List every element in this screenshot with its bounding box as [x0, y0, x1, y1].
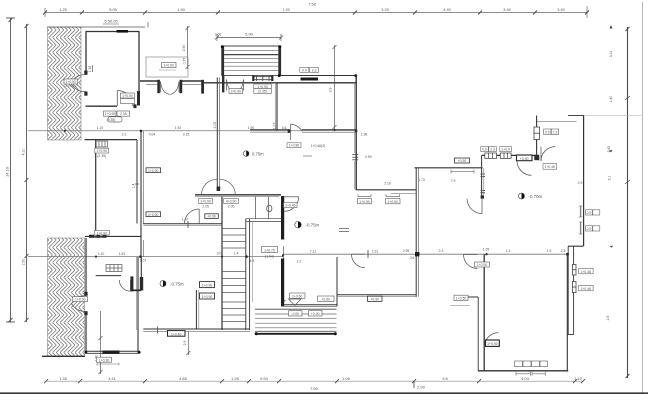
svg-text:1+0.45: 1+0.45 — [545, 165, 556, 169]
svg-text:2.95: 2.95 — [403, 249, 410, 253]
svg-text:2.3: 2.3 — [439, 249, 444, 253]
svg-text:7.9: 7.9 — [451, 179, 456, 183]
svg-text:3.0: 3.0 — [217, 252, 222, 256]
svg-text:1.98: 1.98 — [361, 133, 368, 137]
svg-text:2.3: 2.3 — [490, 148, 495, 152]
svg-text:2.5: 2.5 — [561, 249, 566, 253]
svg-text:1+0.48: 1+0.48 — [581, 287, 592, 291]
svg-text:7.11: 7.11 — [310, 250, 316, 254]
svg-text:1+0.80: 1+0.80 — [289, 144, 300, 148]
svg-text:(1.94): (1.94) — [265, 255, 274, 259]
svg-text:5.05: 5.05 — [109, 7, 117, 12]
svg-text:1+0.90: 1+0.90 — [163, 64, 174, 68]
svg-text:+0.90: +0.90 — [520, 157, 529, 161]
svg-text:1+0.90: 1+0.90 — [257, 85, 268, 89]
svg-text:0.77: 0.77 — [183, 58, 187, 65]
svg-text:1+0.90: 1+0.90 — [97, 231, 108, 235]
svg-text:1+0.90: 1+0.90 — [202, 295, 213, 299]
svg-text:1+0.40: 1+0.40 — [171, 332, 182, 336]
svg-text:1.35: 1.35 — [88, 66, 92, 73]
svg-text:+0.90: +0.90 — [458, 159, 467, 163]
svg-text:1.3: 1.3 — [506, 249, 511, 253]
svg-text:1+0.9: 1+0.9 — [501, 148, 510, 152]
svg-text:2.05: 2.05 — [228, 205, 235, 209]
svg-text:+0.60: +0.60 — [321, 297, 330, 301]
svg-text:1.9: 1.9 — [547, 249, 552, 253]
svg-text:1.10: 1.10 — [574, 376, 583, 381]
svg-text:2+0.90: 2+0.90 — [231, 90, 242, 94]
svg-text:1+0.75: 1+0.75 — [264, 248, 275, 252]
svg-text:0.15: 0.15 — [183, 133, 190, 137]
svg-text:2.6: 2.6 — [606, 316, 610, 321]
svg-text:+0.90: +0.90 — [370, 298, 379, 302]
svg-text:1+0.90: 1+0.90 — [359, 200, 370, 204]
svg-text:3.11: 3.11 — [609, 51, 613, 57]
svg-text:4.10: 4.10 — [22, 149, 26, 156]
svg-text:(2.35): (2.35) — [97, 154, 106, 158]
svg-text:1.4: 1.4 — [234, 252, 239, 256]
svg-text:2.16: 2.16 — [384, 182, 391, 186]
svg-text:1+0.90: 1+0.90 — [99, 358, 110, 362]
svg-text:2.2: 2.2 — [122, 133, 127, 137]
svg-text:0.94: 0.94 — [260, 376, 269, 381]
svg-text:1+0.90: 1+0.90 — [75, 298, 86, 302]
svg-text:5.90: 5.90 — [245, 32, 254, 37]
svg-text:0.04: 0.04 — [149, 133, 156, 137]
svg-text:1+0.90: 1+0.90 — [477, 263, 488, 267]
svg-text:3.45: 3.45 — [503, 7, 511, 12]
svg-text:1.10: 1.10 — [97, 126, 104, 130]
svg-text:1+0.60: 1+0.60 — [292, 294, 303, 298]
svg-text:0.9: 0.9 — [482, 148, 487, 152]
svg-text:4.85: 4.85 — [179, 376, 188, 381]
svg-text:-0.70m: -0.70m — [529, 194, 543, 199]
svg-text:2.05: 2.05 — [202, 205, 209, 209]
svg-text:1+0.90: 1+0.90 — [148, 169, 159, 173]
svg-text:5.50.05: 5.50.05 — [104, 19, 118, 24]
svg-text:7.20: 7.20 — [282, 7, 290, 12]
svg-text:1.01: 1.01 — [140, 259, 147, 263]
svg-text:7.50: 7.50 — [310, 386, 319, 391]
svg-text:1+0.90: 1+0.90 — [96, 149, 107, 153]
svg-text:2.2: 2.2 — [297, 260, 302, 264]
svg-text:1+0.90: 1+0.90 — [122, 94, 133, 98]
svg-text:9.1: 9.1 — [608, 176, 612, 181]
svg-text:2.90: 2.90 — [417, 385, 426, 390]
svg-text:1+0.90: 1+0.90 — [487, 342, 498, 346]
svg-text:+0.00: +0.00 — [311, 312, 320, 316]
svg-text:1.40: 1.40 — [609, 96, 613, 103]
svg-text:2.3: 2.3 — [553, 130, 558, 134]
svg-text:-0.75m: -0.75m — [170, 281, 184, 286]
svg-text:3.65: 3.65 — [607, 146, 611, 153]
svg-text:1.92: 1.92 — [175, 126, 182, 130]
svg-text:1+0.46(2): 1+0.46(2) — [311, 144, 326, 148]
svg-text:0.90: 0.90 — [365, 155, 372, 159]
svg-text:3.41: 3.41 — [108, 376, 117, 381]
svg-text:0.6: 0.6 — [410, 256, 415, 260]
svg-text:1+0.90: 1+0.90 — [148, 213, 159, 217]
svg-text:1.10: 1.10 — [98, 252, 105, 256]
svg-text:1.06: 1.06 — [342, 376, 351, 381]
svg-text:+0.90: +0.90 — [207, 215, 216, 219]
svg-text:3.8: 3.8 — [442, 376, 448, 381]
svg-text:4.04: 4.04 — [521, 376, 530, 381]
svg-text:1.35: 1.35 — [59, 376, 68, 381]
svg-text:1+0.90: 1+0.90 — [202, 284, 213, 288]
svg-text:1.90: 1.90 — [177, 7, 185, 12]
svg-text:0.9: 0.9 — [302, 68, 307, 72]
svg-text:4.5: 4.5 — [250, 259, 255, 263]
svg-text:1.07: 1.07 — [273, 123, 277, 130]
svg-text:1+0.45: 1+0.45 — [285, 204, 296, 208]
svg-text:2.06: 2.06 — [215, 33, 222, 37]
svg-text:2.05: 2.05 — [213, 122, 217, 129]
svg-text:4+0.90: 4+0.90 — [226, 200, 237, 204]
svg-text:0.9: 0.9 — [587, 211, 592, 215]
svg-text:1+0.50: 1+0.50 — [456, 297, 467, 301]
svg-text:4.40: 4.40 — [443, 7, 451, 12]
svg-text:2.9: 2.9 — [578, 181, 583, 185]
svg-text:0.75m: 0.75m — [252, 151, 264, 156]
svg-text:2.35: 2.35 — [120, 112, 127, 116]
svg-text:1.91: 1.91 — [372, 250, 379, 254]
svg-text:1.73: 1.73 — [418, 178, 425, 182]
svg-text:7.58: 7.58 — [308, 2, 316, 7]
svg-text:1.50: 1.50 — [22, 259, 26, 266]
svg-text:1.4: 1.4 — [132, 184, 136, 189]
svg-text:1+0.90: 1+0.90 — [200, 200, 211, 204]
svg-text:1.26: 1.26 — [231, 376, 240, 381]
svg-text:1+0.90: 1+0.90 — [387, 200, 398, 204]
svg-text:3.9: 3.9 — [329, 88, 333, 93]
svg-text:1+0.90: 1+0.90 — [65, 80, 76, 84]
svg-text:1.25: 1.25 — [59, 7, 67, 12]
svg-text:3.40: 3.40 — [557, 7, 565, 12]
svg-text:(2.35): (2.35) — [258, 90, 267, 94]
svg-text:1.05: 1.05 — [483, 248, 490, 252]
svg-text:2.90: 2.90 — [182, 45, 186, 52]
svg-text:2.3: 2.3 — [312, 68, 317, 72]
svg-text:1.51: 1.51 — [119, 252, 126, 256]
svg-text:0.9: 0.9 — [545, 130, 550, 134]
svg-text:14.10: 14.10 — [5, 166, 10, 177]
svg-text:2.9: 2.9 — [183, 341, 187, 346]
svg-text:0.9: 0.9 — [587, 227, 592, 231]
svg-text:-0.00: -0.00 — [291, 312, 299, 316]
svg-text:1+0.90: 1+0.90 — [105, 112, 116, 116]
svg-text:3.25: 3.25 — [381, 7, 389, 12]
svg-text:1+0.48: 1+0.48 — [581, 270, 592, 274]
svg-text:-0.75m: -0.75m — [306, 223, 320, 228]
